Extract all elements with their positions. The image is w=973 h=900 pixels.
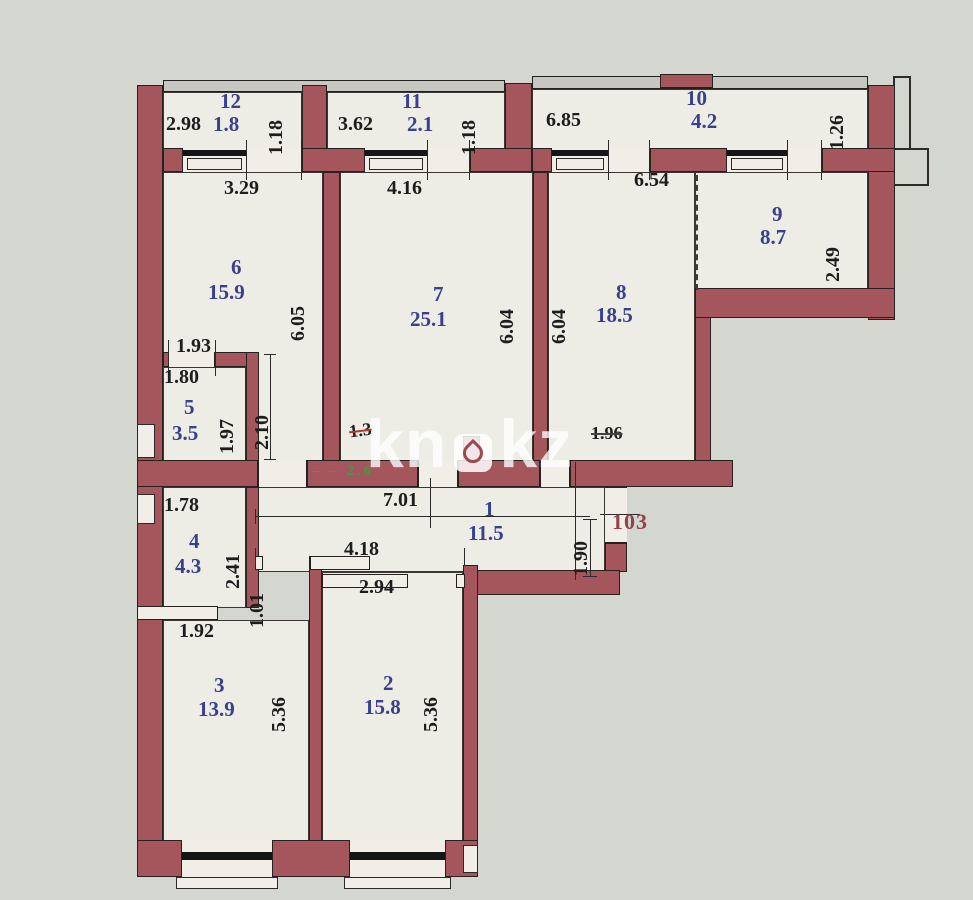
watermark-text-right: kz: [499, 405, 573, 483]
label-room-9-no: 9: [772, 204, 783, 225]
label-room-8-no: 8: [616, 282, 627, 303]
label-dim-2-49: 2.49: [823, 218, 843, 282]
label-room-7-area: 25.1: [410, 309, 447, 330]
label-room-2-no: 2: [383, 673, 394, 694]
label-room-11-no: 11: [402, 91, 422, 112]
label-dim-6-54: 6.54: [634, 170, 669, 190]
outer-contour-notch: [893, 148, 929, 186]
wall-corridor-top-4: [570, 460, 733, 487]
label-room-6-area: 15.9: [208, 282, 245, 303]
label-dim-6-04-a: 6.04: [497, 280, 517, 344]
label-dim-1-90: 1.90: [571, 514, 591, 576]
wall-entry-corner: [467, 570, 620, 595]
label-dim-1-18-a: 1.18: [266, 95, 286, 155]
niche-room-4: [137, 494, 155, 524]
wall-bottom-2: [272, 840, 350, 877]
wall-under-balcony-1: [163, 148, 183, 172]
label-dim-1-01: 1.01: [247, 572, 267, 628]
label-dim-5-36-a: 5.36: [269, 668, 289, 732]
label-dim-3-29: 3.29: [224, 178, 259, 198]
label-dim-3-62: 3.62: [338, 114, 373, 134]
wall-entry-stub: [605, 543, 627, 572]
watermark-badge: [454, 434, 492, 472]
label-dim-4-16: 4.16: [387, 178, 422, 198]
label-room-12-no: 12: [220, 91, 241, 112]
outer-contour: [893, 76, 911, 150]
label-dim-7-01: 7.01: [383, 490, 418, 510]
label-room-4-area: 4.3: [175, 556, 201, 577]
label-room-5-no: 5: [184, 397, 195, 418]
label-dim-1-80: 1.80: [164, 367, 199, 387]
label-dim-1-26: 1.26: [827, 90, 847, 150]
label-dim-5-36-b: 5.36: [421, 668, 441, 732]
wall-under-balcony-6: [822, 148, 895, 172]
label-room-11-area: 2.1: [407, 114, 433, 135]
niche-room-2: [463, 845, 478, 873]
watermark: kn kz: [366, 405, 573, 483]
label-dim-6-05: 6.05: [288, 277, 308, 341]
partition-room-3-top: [137, 606, 218, 620]
wall-rooms-3-2: [309, 556, 322, 877]
wall-rooms-6-7: [323, 172, 340, 465]
label-room-3-no: 3: [214, 675, 225, 696]
wall-corridor-top-1: [137, 460, 258, 487]
wall-under-balcony-2: [302, 148, 365, 172]
label-dim-2-41: 2.41: [223, 527, 243, 589]
floor-plan: kn kz 2.98121.81.183.62112.11.186.85104.…: [0, 0, 973, 900]
niche-room-5: [137, 424, 155, 458]
label-dim-1-92: 1.92: [179, 621, 214, 641]
label-note-green: ‒ ‒ 2.6: [312, 464, 374, 479]
label-room-10-area: 4.2: [691, 111, 717, 132]
wall-bottom-1: [137, 840, 182, 877]
label-room-5-area: 3.5: [172, 423, 198, 444]
wall-room-9-bottom: [695, 288, 895, 318]
door-corridor-room-6: [258, 460, 307, 487]
dashed-divider-rooms-8-9: [696, 175, 698, 290]
droplet-icon: [459, 439, 487, 467]
label-room-9-area: 8.7: [760, 227, 786, 248]
label-apt-number: 103: [612, 511, 648, 533]
label-note-1-3: 1.3: [348, 420, 373, 441]
label-dim-4-18: 4.18: [344, 539, 379, 559]
label-room-8-area: 18.5: [596, 305, 633, 326]
label-room-4-no: 4: [189, 531, 200, 552]
label-room-2-area: 15.8: [364, 697, 401, 718]
label-room-1-no: 1: [484, 499, 495, 520]
label-room-6-no: 6: [231, 257, 242, 278]
door-balcony-10-right: [787, 148, 822, 172]
label-dim-6-04-b: 6.04: [549, 280, 569, 344]
watermark-text-left: kn: [366, 405, 447, 483]
balcony-railing-left: [163, 80, 505, 92]
partition-corridor-bottom-a: [255, 556, 263, 570]
label-dim-2-94: 2.94: [359, 577, 394, 597]
label-note-1-96: 1.96: [591, 424, 623, 442]
label-room-3-area: 13.9: [198, 699, 235, 720]
label-dim-1-18-b: 1.18: [459, 95, 479, 155]
label-dim-1-93: 1.93: [176, 336, 211, 356]
wall-room-2-right: [463, 565, 478, 877]
label-dim-2-10: 2.10: [252, 388, 272, 450]
wall-right: [868, 85, 895, 320]
label-dim-6-85: 6.85: [546, 110, 581, 130]
label-room-10-no: 10: [686, 88, 707, 109]
partition-room-2-top-b: [456, 574, 465, 588]
label-room-12-area: 1.8: [213, 114, 239, 135]
wall-under-balcony-4: [532, 148, 552, 172]
label-dim-1-97: 1.97: [217, 396, 237, 454]
label-dim-2-98: 2.98: [166, 114, 201, 134]
label-room-1-area: 11.5: [468, 523, 504, 544]
label-room-7-no: 7: [433, 284, 444, 305]
label-dim-1-78: 1.78: [164, 495, 199, 515]
